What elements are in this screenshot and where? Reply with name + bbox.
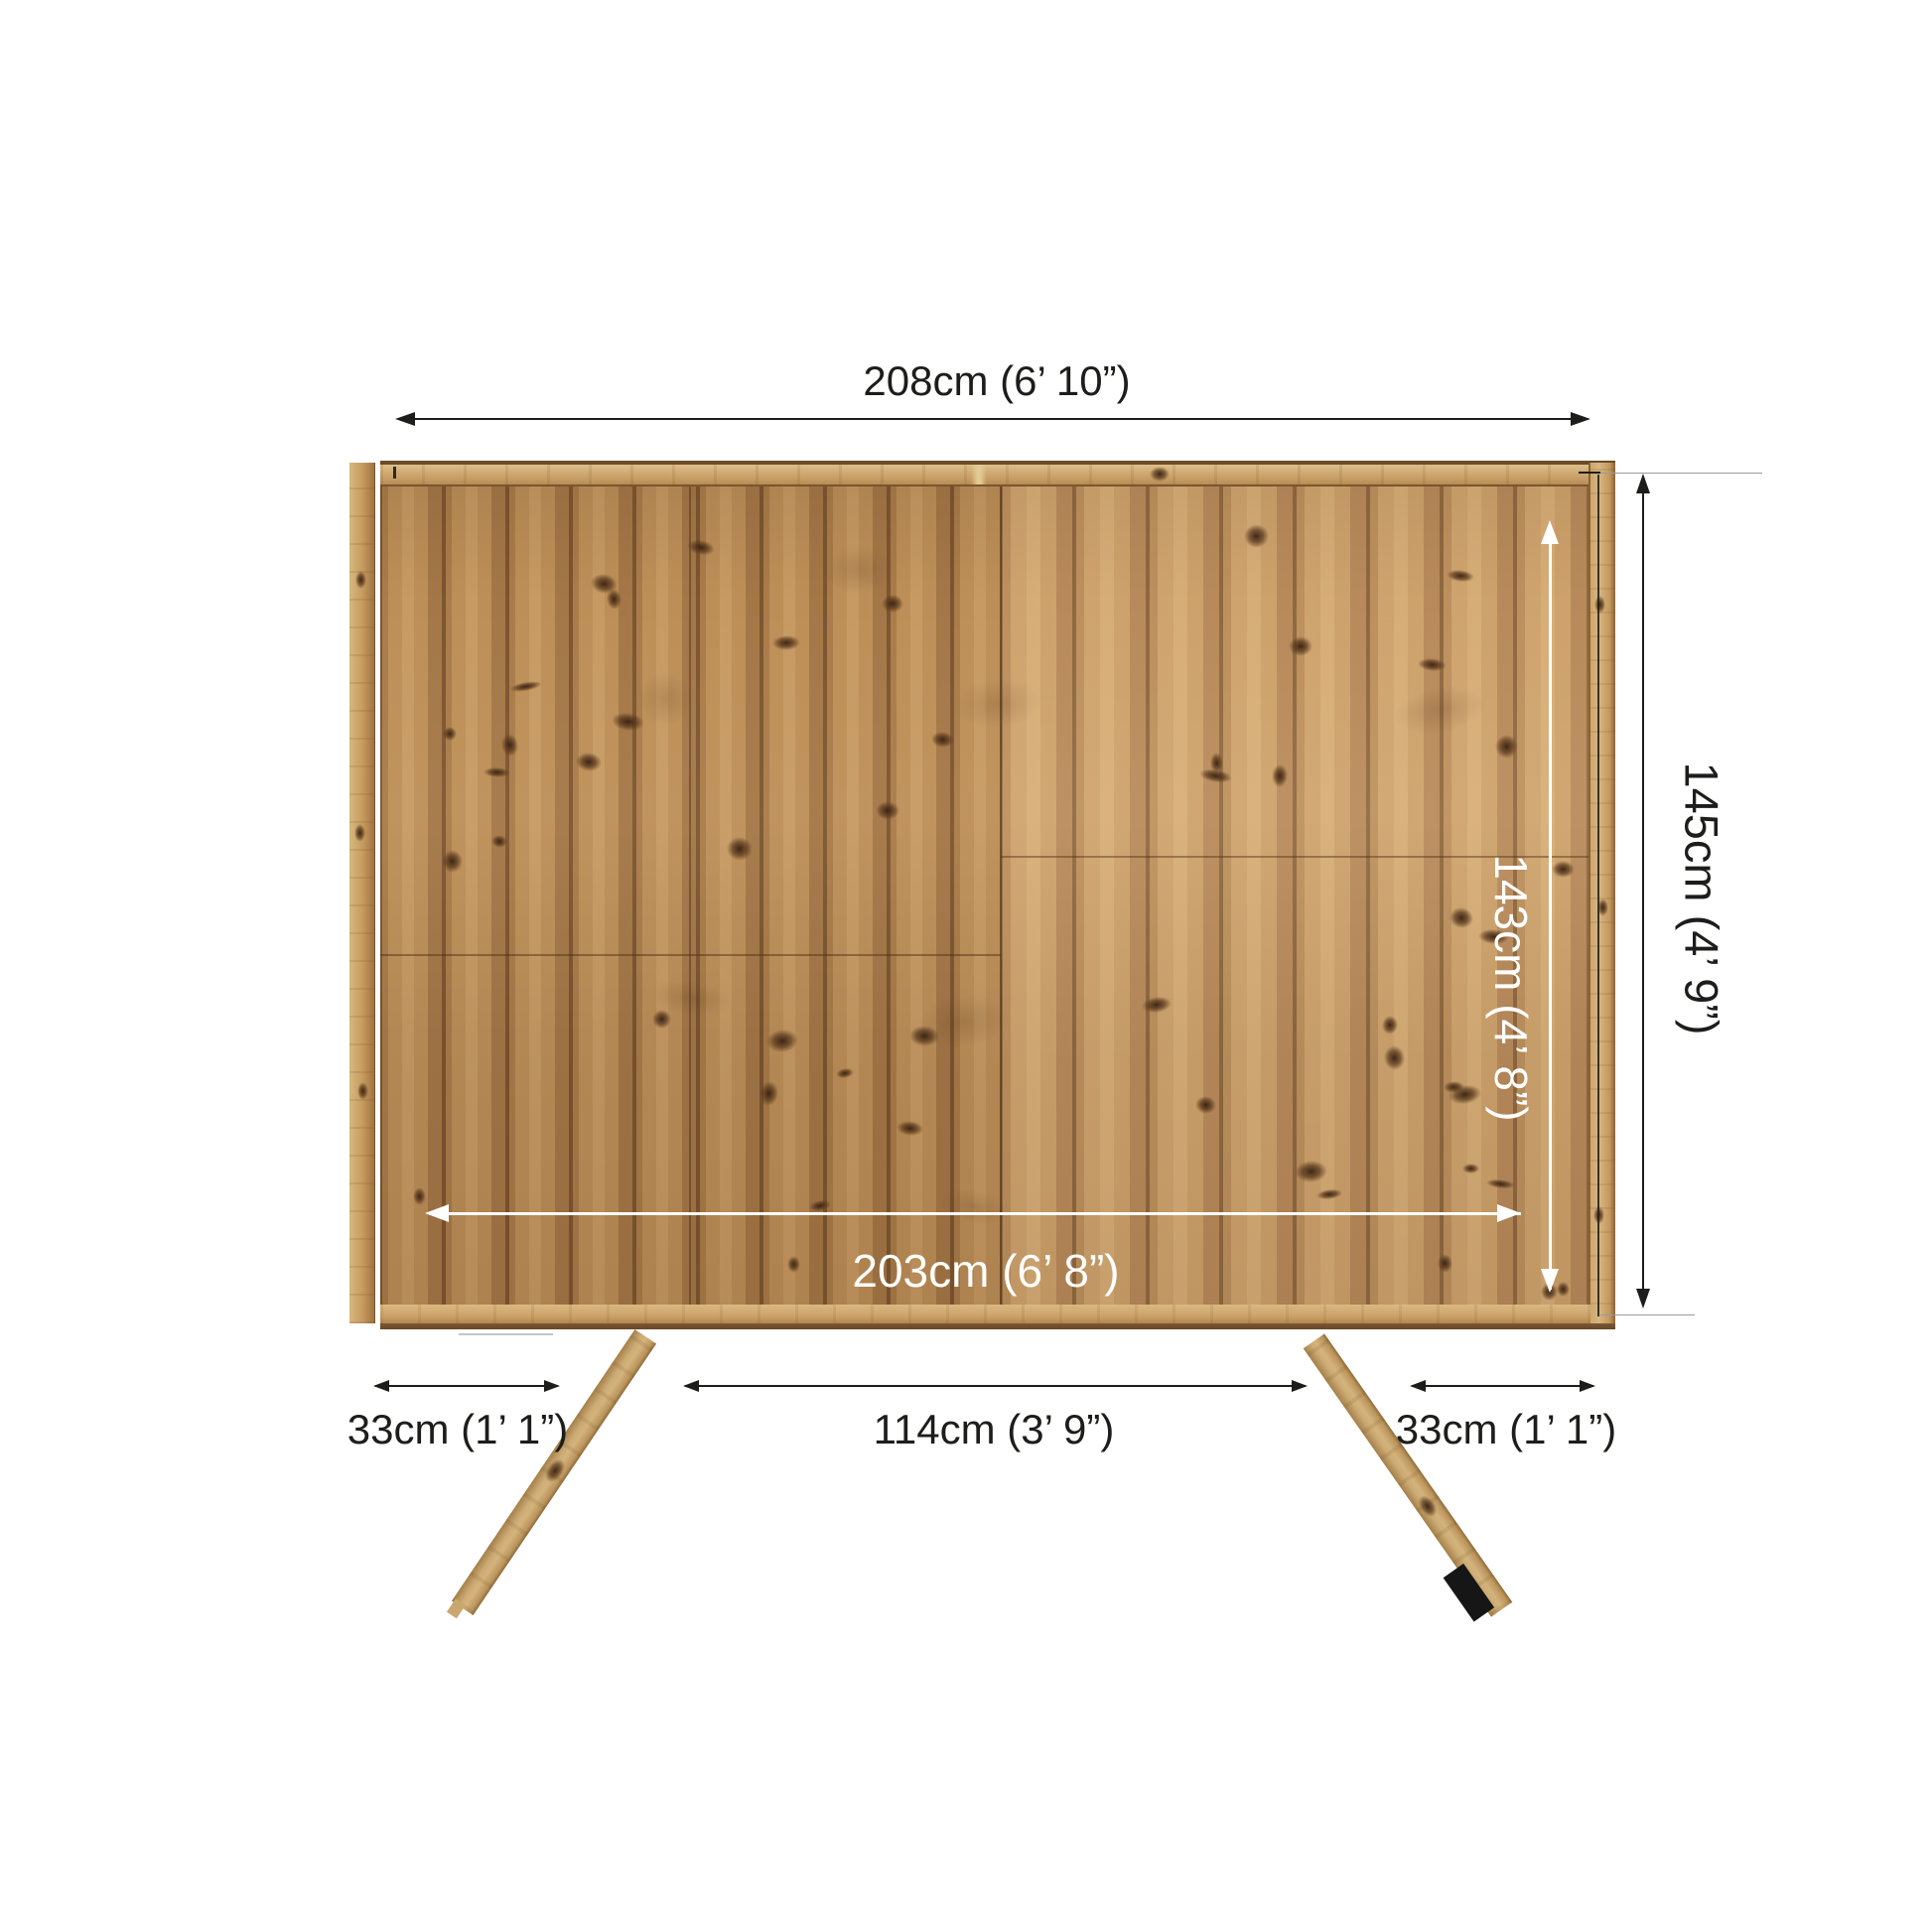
- top-rail-seam: [971, 465, 987, 484]
- wood-knot: [1462, 1164, 1479, 1173]
- wood-knot: [1486, 1178, 1516, 1190]
- wood-knot: [1448, 905, 1475, 931]
- wood-knot: [575, 752, 603, 773]
- wood-patch: [1373, 668, 1508, 751]
- knots-layer: [380, 486, 1588, 1305]
- wood-knot: [896, 1120, 923, 1137]
- wood-knot: [1243, 523, 1269, 548]
- rail-knot: [1150, 467, 1170, 482]
- wood-knot: [1294, 1160, 1327, 1183]
- wood-knot: [1141, 995, 1173, 1015]
- panel-bottom-edge: [380, 1323, 1615, 1329]
- frame-knot: [1594, 596, 1605, 614]
- top-left-tick-mark: [393, 467, 396, 479]
- frame-knot: [355, 571, 366, 589]
- dim-center-span-label: 114cm (3’ 9”): [874, 1409, 1115, 1450]
- wood-knot: [1552, 861, 1575, 878]
- dim-top-width-arrowhead-right: [1571, 412, 1590, 426]
- dim-top-width-label: 208cm (6’ 10”): [863, 360, 1130, 402]
- leader-line-bottom: [1600, 1314, 1695, 1315]
- wood-knot: [1438, 1254, 1453, 1274]
- dim-inner-height-label: 143cm (4’ 8”): [1488, 854, 1534, 1121]
- wood-knot: [726, 836, 754, 862]
- dim-left-offset-arrowhead-left: [373, 1380, 389, 1392]
- ground-mark: [459, 1333, 553, 1335]
- wood-knot: [808, 1198, 832, 1213]
- dim-outer-height-label: 145cm (4’ 9”): [1679, 761, 1725, 1035]
- extension-tick-top: [1579, 472, 1600, 474]
- wood-knot: [1289, 636, 1312, 656]
- dim-left-offset-label: 33cm (1’ 1”): [347, 1409, 569, 1450]
- dim-outer-height-line: [1642, 478, 1644, 1306]
- wood-knot: [1194, 1095, 1217, 1115]
- wood-knot: [835, 1067, 854, 1080]
- wood-knot: [442, 850, 463, 873]
- wood-knot: [1381, 1015, 1399, 1035]
- wood-knot: [413, 1187, 426, 1205]
- dim-inner-width-arrowhead-right: [1497, 1204, 1521, 1222]
- frame-knot: [354, 824, 365, 842]
- wood-knot: [1383, 1044, 1407, 1071]
- shed-panel-dimension-diagram: 208cm (6’ 10”) 145cm (4’ 9”) 143cm (4’ 8…: [0, 0, 1932, 1932]
- wood-knot: [1315, 1187, 1342, 1200]
- top-rail: [380, 465, 1615, 486]
- dim-center-span-arrowhead-right: [1292, 1380, 1308, 1392]
- dim-inner-height-arrowhead-bottom: [1541, 1269, 1559, 1293]
- leader-line-top: [1600, 473, 1762, 474]
- bottom-rail: [380, 1305, 1590, 1323]
- wood-knot: [787, 1256, 800, 1273]
- wood-knot: [491, 834, 508, 848]
- dim-inner-width-arrowhead-left: [425, 1204, 449, 1222]
- dim-inner-height-arrowhead-top: [1541, 520, 1559, 544]
- wood-knot: [1210, 753, 1223, 773]
- wood-knot: [686, 538, 716, 558]
- wood-knot: [1446, 569, 1474, 584]
- wood-knot: [759, 1080, 780, 1107]
- dim-right-offset-label: 33cm (1’ 1”): [1396, 1409, 1617, 1450]
- wood-patch: [936, 665, 1058, 742]
- wood-knot: [443, 727, 457, 741]
- frame-knot: [357, 1082, 368, 1100]
- wood-patch: [924, 1176, 1023, 1238]
- dim-left-offset-line: [375, 1385, 558, 1387]
- dim-outer-height-arrowhead-top: [1636, 474, 1650, 493]
- wood-knot: [772, 635, 801, 651]
- dim-right-offset-arrowhead-left: [1410, 1380, 1426, 1392]
- dim-inner-width-line: [429, 1212, 1521, 1215]
- right-stile: [1588, 463, 1615, 1328]
- dim-center-span-arrowhead-left: [683, 1380, 699, 1392]
- dim-right-offset-line: [1412, 1385, 1593, 1387]
- wood-knot: [1272, 764, 1289, 788]
- extension-line-vertical: [1597, 475, 1599, 1316]
- wood-knot: [882, 595, 903, 613]
- wood-patch: [898, 976, 1030, 1066]
- dim-top-width-arrowhead-left: [395, 412, 415, 426]
- dim-left-offset-arrowhead-right: [544, 1380, 560, 1392]
- dim-right-offset-arrowhead-right: [1580, 1380, 1595, 1392]
- wood-knot: [1417, 657, 1447, 672]
- wood-knot: [483, 767, 510, 778]
- wood-knot: [930, 731, 954, 749]
- dim-outer-height-arrowhead-bottom: [1636, 1289, 1650, 1309]
- wood-patch: [809, 536, 905, 603]
- wood-knot: [508, 679, 542, 694]
- wood-knot: [1495, 735, 1518, 759]
- wood-knot: [876, 801, 899, 820]
- dim-center-span-line: [685, 1385, 1306, 1387]
- dim-top-width-line: [407, 418, 1579, 420]
- wood-knot: [765, 1029, 799, 1054]
- dim-inner-height-line: [1549, 527, 1552, 1290]
- left-batten: [349, 463, 375, 1323]
- wood-knot: [499, 733, 519, 758]
- dim-inner-width-label: 203cm (6’ 8”): [852, 1248, 1119, 1294]
